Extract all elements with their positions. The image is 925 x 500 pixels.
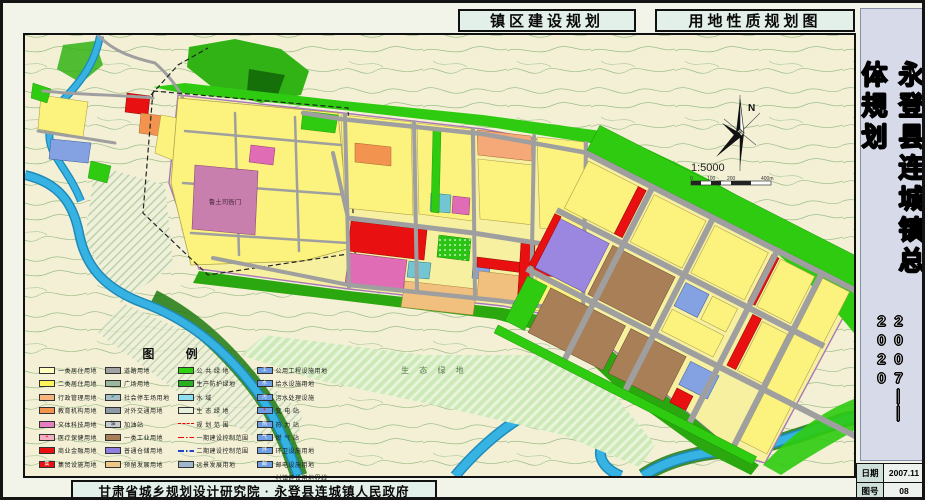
legend-swatch: 油 bbox=[105, 421, 121, 428]
legend-item: P社会停车场用地 bbox=[105, 393, 170, 402]
title-box-right: 用地性质规划图 bbox=[655, 9, 855, 32]
legend-item: 集集贸设施用地 bbox=[39, 460, 97, 469]
legend-label: 邮电设施用地 bbox=[276, 460, 315, 469]
north-label: N bbox=[748, 103, 755, 114]
legend-label: 热 力 站 bbox=[276, 420, 300, 429]
date-label: 日期 bbox=[857, 464, 884, 483]
legend-label: 生产防护绿地 bbox=[197, 379, 236, 388]
legend-item: 广场用地 bbox=[105, 379, 170, 388]
attribution-text: 甘肃省城乡规划设计研究院 · 永登县连城镇人民政府 bbox=[98, 481, 409, 500]
svg-text:400m: 400m bbox=[761, 176, 774, 182]
sheet-number-label: 图号 bbox=[857, 482, 884, 500]
legend-label: 二期建设控制范围 bbox=[197, 446, 249, 455]
legend-item: 对外交通用地 bbox=[105, 406, 170, 415]
legend-item: 规 划 范 围 bbox=[178, 420, 249, 429]
legend-swatch bbox=[178, 461, 194, 468]
legend-swatch bbox=[105, 367, 121, 374]
legend-label: 道路用地 bbox=[124, 366, 150, 375]
legend-label: 污水处理设施 bbox=[276, 393, 315, 402]
title-box-left: 镇区建设规划 bbox=[458, 9, 636, 32]
legend-label: 广场用地 bbox=[124, 379, 150, 388]
plan-title-vertical: 永登县连城镇总体规划 bbox=[855, 61, 925, 307]
legend-item: 工公用工程设施用地 bbox=[257, 366, 328, 375]
legend-swatch: ⚡ bbox=[257, 407, 273, 414]
legend-item: +医疗保健用地 bbox=[39, 433, 97, 442]
sidebar: 永登县连城镇总体规划 2007——2020 bbox=[860, 8, 924, 461]
legend-label: 公 共 绿 地 bbox=[197, 366, 230, 375]
legend-swatch bbox=[39, 367, 55, 374]
legend-swatch bbox=[105, 461, 121, 468]
legend-label: 行政管理用地 bbox=[58, 393, 97, 402]
legend-item: 水给水设施用地 bbox=[257, 379, 328, 388]
legend-title: 图 例 bbox=[39, 345, 315, 362]
legend-item: 水 域 bbox=[178, 393, 249, 402]
legend-item: 文体科技用地 bbox=[39, 420, 97, 429]
legend-label: 社会停车场用地 bbox=[124, 393, 170, 402]
legend-swatch bbox=[105, 407, 121, 414]
legend-label: 文体科技用地 bbox=[58, 420, 97, 429]
legend-label: 教育机构用地 bbox=[58, 406, 97, 415]
legend-swatch bbox=[178, 423, 194, 426]
legend-label: 燃 气 站 bbox=[276, 433, 300, 442]
legend-swatch bbox=[178, 380, 194, 387]
legend-label: 水 域 bbox=[197, 393, 212, 402]
legend-swatch bbox=[105, 434, 121, 441]
legend-label: 规 划 范 围 bbox=[197, 420, 230, 429]
eco-green-label: 生 态 绿 地 bbox=[401, 365, 468, 375]
legend-label: 一类居住用地 bbox=[58, 366, 97, 375]
legend-label: 生 态 绿 地 bbox=[197, 406, 230, 415]
legend-column: 道路用地广场用地P社会停车场用地对外交通用地油加油站一类工业用地普通仓储用地预留… bbox=[105, 366, 170, 487]
legend-label: 对外交通用地 bbox=[124, 406, 163, 415]
svg-text:0: 0 bbox=[690, 176, 693, 182]
legend-swatch bbox=[178, 407, 194, 414]
legend-swatch bbox=[257, 476, 273, 479]
legend-item: 热热 力 站 bbox=[257, 420, 328, 429]
legend-swatch bbox=[39, 407, 55, 414]
legend-swatch: 水 bbox=[257, 380, 273, 387]
legend-item: 远景发展用地 bbox=[178, 460, 249, 469]
legend-swatch bbox=[39, 394, 55, 401]
sheet-number-value: 08 bbox=[884, 482, 925, 500]
legend-label: 远景发展用地 bbox=[197, 460, 236, 469]
legend-item: 一类居住用地 bbox=[39, 366, 97, 375]
legend-swatch: + bbox=[39, 434, 55, 441]
sheet-info-table: 日期 2007.11 图号 08 bbox=[856, 463, 925, 500]
legend-column: 工公用工程设施用地水给水设施用地污污水处理设施⚡变 电 站热热 力 站气燃 气 … bbox=[257, 366, 328, 487]
svg-text:100: 100 bbox=[707, 176, 716, 182]
legend-item: 行政管理用地 bbox=[39, 393, 97, 402]
legend-item: 道路用地 bbox=[105, 366, 170, 375]
legend-swatch bbox=[178, 437, 194, 439]
date-value: 2007.11 bbox=[884, 464, 925, 483]
legend-label: 预留发展用地 bbox=[124, 460, 163, 469]
legend-swatch: 热 bbox=[257, 421, 273, 428]
legend: 图 例 一类居住用地二类居住用地行政管理用地教育机构用地文体科技用地+医疗保健用… bbox=[39, 345, 315, 487]
legend-label: 集贸设施用地 bbox=[58, 460, 97, 469]
title-right-text: 用地性质规划图 bbox=[688, 10, 821, 31]
legend-swatch: 环 bbox=[257, 447, 273, 454]
legend-item: 普通仓储用地 bbox=[105, 446, 170, 455]
legend-item: 二期建设控制范围 bbox=[178, 446, 249, 455]
legend-item: 油加油站 bbox=[105, 420, 170, 429]
legend-swatch bbox=[178, 450, 194, 452]
scale-text: 1:5000 bbox=[691, 162, 725, 174]
table-row: 日期 2007.11 bbox=[857, 464, 925, 483]
table-row: 图号 08 bbox=[857, 482, 925, 500]
legend-item: 生产防护绿地 bbox=[178, 379, 249, 388]
legend-column: 公 共 绿 地生产防护绿地水 域生 态 绿 地规 划 范 围一期建设控制范围二期… bbox=[178, 366, 249, 487]
legend-label: 给水设施用地 bbox=[276, 379, 315, 388]
legend-item: 气燃 气 站 bbox=[257, 433, 328, 442]
legend-swatch bbox=[39, 380, 55, 387]
legend-label: 二类居住用地 bbox=[58, 379, 97, 388]
legend-item: 邮邮电设施用地 bbox=[257, 460, 328, 469]
legend-swatch bbox=[39, 447, 55, 454]
legend-label: 加油站 bbox=[124, 420, 144, 429]
legend-label: 公用工程设施用地 bbox=[276, 366, 328, 375]
plan-years: 2007——2020 bbox=[873, 313, 911, 460]
legend-label: 变 电 站 bbox=[276, 406, 300, 415]
legend-swatch bbox=[178, 394, 194, 401]
legend-item: 二类居住用地 bbox=[39, 379, 97, 388]
legend-label: 一期建设控制范围 bbox=[197, 433, 249, 442]
title-left-text: 镇区建设规划 bbox=[490, 10, 604, 31]
legend-column: 一类居住用地二类居住用地行政管理用地教育机构用地文体科技用地+医疗保健用地商业金… bbox=[39, 366, 97, 487]
lu-tusi-label: 鲁土司衙门 bbox=[209, 197, 242, 206]
legend-item: 污污水处理设施 bbox=[257, 393, 328, 402]
legend-swatch: 工 bbox=[257, 367, 273, 374]
legend-swatch: 邮 bbox=[257, 461, 273, 468]
legend-item: 商业金融用地 bbox=[39, 446, 97, 455]
legend-item: 一期建设控制范围 bbox=[178, 433, 249, 442]
plan-sheet: 生 态 绿 地 鲁土司衙门 N 1:5000 0 100 200 bbox=[0, 0, 925, 500]
legend-item: 一类工业用地 bbox=[105, 433, 170, 442]
legend-swatch bbox=[178, 367, 194, 374]
legend-swatch bbox=[105, 447, 121, 454]
legend-label: 商业金融用地 bbox=[58, 446, 97, 455]
legend-label: 普通仓储用地 bbox=[124, 446, 163, 455]
legend-item: 生 态 绿 地 bbox=[178, 406, 249, 415]
legend-label: 医疗保健用地 bbox=[58, 433, 97, 442]
legend-item: 公 共 绿 地 bbox=[178, 366, 249, 375]
legend-item: 预留发展用地 bbox=[105, 460, 170, 469]
svg-text:200: 200 bbox=[727, 176, 736, 182]
legend-label: 环卫设施用地 bbox=[276, 446, 315, 455]
legend-swatch: 污 bbox=[257, 394, 273, 401]
legend-item: 教育机构用地 bbox=[39, 406, 97, 415]
legend-swatch: P bbox=[105, 394, 121, 401]
legend-item: ⚡变 电 站 bbox=[257, 406, 328, 415]
legend-item: 环环卫设施用地 bbox=[257, 446, 328, 455]
legend-swatch: 气 bbox=[257, 434, 273, 441]
attribution-box: 甘肃省城乡规划设计研究院 · 永登县连城镇人民政府 bbox=[71, 480, 437, 500]
legend-swatch bbox=[105, 380, 121, 387]
legend-swatch: 集 bbox=[39, 461, 55, 468]
legend-label: 一类工业用地 bbox=[124, 433, 163, 442]
legend-swatch bbox=[39, 421, 55, 428]
